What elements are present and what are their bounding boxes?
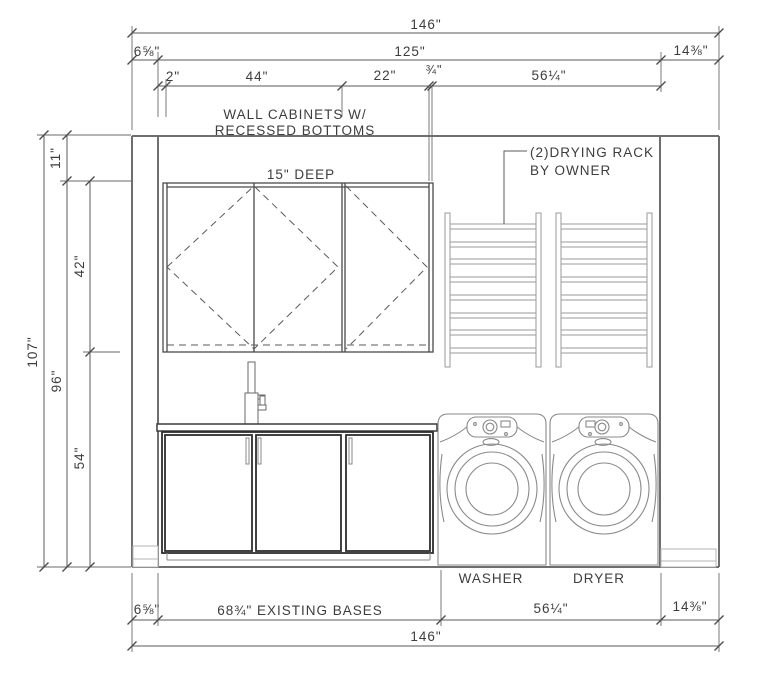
- countertop: [157, 424, 437, 431]
- base-door-middle: [256, 435, 341, 551]
- dim-left-overall: 107": [25, 336, 40, 367]
- right-baseboard: [661, 549, 716, 567]
- drying-rack-2: [556, 213, 652, 367]
- dim-bottom-existing-bases: 68¾" EXISTING BASES: [217, 603, 383, 618]
- drying-racks: [445, 151, 652, 367]
- dim-left-floor-to-ceiling: 96": [49, 370, 64, 393]
- door-swing-diamond: [167, 186, 338, 349]
- dim-bottom-right-wall: 14⅜": [672, 599, 707, 614]
- base-door-right: [346, 435, 430, 551]
- note-drying-rack-1: (2)DRYING RACK: [530, 145, 654, 160]
- note-wall-cabinets-2: RECESSED BOTTOMS: [215, 123, 376, 138]
- door-handle: [258, 438, 261, 464]
- dim-top-overall: 146": [410, 17, 441, 32]
- dim-left-cabinet-height: 42": [72, 255, 87, 278]
- base-door-left: [165, 435, 252, 551]
- dim-top-filler: 2": [166, 69, 180, 84]
- elevation-drawing: 146" 6⅝" 125" 14⅜" 2" 44" 22" ¾" 56¼" 10…: [0, 0, 768, 681]
- wall-cabinet-box: [163, 183, 433, 352]
- drying-rack-1: [445, 213, 541, 367]
- cad-canvas: 146" 6⅝" 125" 14⅜" 2" 44" 22" ¾" 56¼" 10…: [0, 0, 768, 681]
- dim-top-wall-cab-single: 22": [374, 68, 397, 83]
- left-baseboard: [133, 546, 158, 567]
- door-handle: [246, 438, 249, 464]
- note-cabinet-depth: 15" DEEP: [267, 167, 335, 182]
- dryer-drawing: [550, 414, 658, 565]
- sink-counter-area: [157, 362, 437, 560]
- faucet: [245, 362, 266, 424]
- door-swing-chevron: [346, 186, 427, 349]
- dim-top-wall-cab-double: 44": [246, 69, 269, 84]
- dim-top-left-wall: 6⅝": [134, 44, 161, 59]
- dim-left-above-cabinets: 11": [48, 147, 63, 169]
- dim-top-interior: 125": [394, 44, 425, 59]
- dim-bottom-overall: 146": [410, 629, 441, 644]
- dim-bottom-appliances: 56¼": [533, 601, 568, 616]
- dim-left-below-cabinets: 54": [72, 447, 87, 470]
- washer-label: WASHER: [459, 571, 524, 586]
- note-drying-rack-2: BY OWNER: [530, 163, 611, 178]
- note-wall-cabinets-1: WALL CABINETS W/: [223, 107, 366, 122]
- leader-line: [504, 151, 527, 224]
- dimensions-left: [37, 131, 131, 572]
- dim-bottom-left-wall: 6⅝": [134, 602, 161, 617]
- dim-top-spacer: ¾": [426, 63, 443, 77]
- washer-drawing: [438, 414, 546, 565]
- appliances: [438, 414, 658, 565]
- wall-cabinets: [163, 183, 433, 352]
- dim-top-appliances: 56¼": [531, 68, 566, 83]
- dim-top-right-wall: 14⅜": [673, 43, 708, 58]
- dryer-label: DRYER: [573, 571, 625, 586]
- door-handle: [349, 438, 352, 464]
